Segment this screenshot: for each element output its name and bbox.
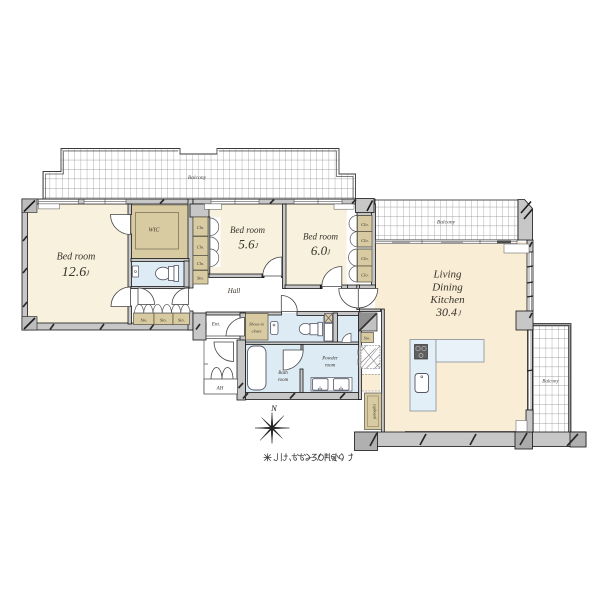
svg-text:Clo.: Clo. bbox=[361, 256, 369, 261]
svg-text:Ent.: Ent. bbox=[211, 322, 221, 328]
svg-text:Clo.: Clo. bbox=[361, 222, 369, 227]
svg-text:Bed room: Bed room bbox=[57, 252, 96, 263]
svg-text:Sto.: Sto. bbox=[160, 318, 167, 323]
svg-text:WIC: WIC bbox=[149, 228, 161, 234]
svg-text:Balcony: Balcony bbox=[188, 175, 207, 181]
svg-text:Powder: Powder bbox=[321, 357, 338, 362]
svg-text:Balcony: Balcony bbox=[542, 380, 559, 385]
svg-text:Clo.: Clo. bbox=[361, 238, 369, 243]
svg-text:Sto.: Sto. bbox=[178, 318, 185, 323]
svg-text:Dining: Dining bbox=[431, 282, 463, 294]
svg-text:Clo.: Clo. bbox=[361, 273, 369, 278]
svg-text:Sto.: Sto. bbox=[140, 318, 147, 323]
svg-text:Balcony: Balcony bbox=[437, 220, 456, 226]
svg-text:Living: Living bbox=[432, 269, 462, 281]
svg-text:room: room bbox=[278, 378, 289, 383]
svg-text:6.0: 6.0 bbox=[311, 243, 328, 258]
svg-text:Shoes-in: Shoes-in bbox=[249, 322, 263, 327]
svg-text:AH: AH bbox=[216, 387, 224, 392]
svg-text:cupboard: cupboard bbox=[373, 404, 378, 420]
svg-text:Clo.: Clo. bbox=[197, 245, 205, 250]
svg-text:Bed room: Bed room bbox=[230, 225, 265, 235]
svg-text:Bed room: Bed room bbox=[303, 232, 338, 242]
svg-text:closet: closet bbox=[252, 329, 263, 334]
svg-text:30.4: 30.4 bbox=[435, 305, 457, 319]
svg-text:room: room bbox=[325, 364, 336, 369]
svg-text:12.6: 12.6 bbox=[62, 265, 87, 280]
svg-text:Sto.: Sto. bbox=[364, 336, 370, 341]
svg-text:5.6: 5.6 bbox=[238, 237, 255, 252]
svg-text:Clo.: Clo. bbox=[197, 225, 205, 230]
svg-text:Hall: Hall bbox=[227, 287, 241, 295]
svg-text:Clo.: Clo. bbox=[197, 261, 205, 266]
svg-text:Bath: Bath bbox=[278, 371, 288, 376]
svg-text:Sto.: Sto. bbox=[197, 276, 204, 281]
